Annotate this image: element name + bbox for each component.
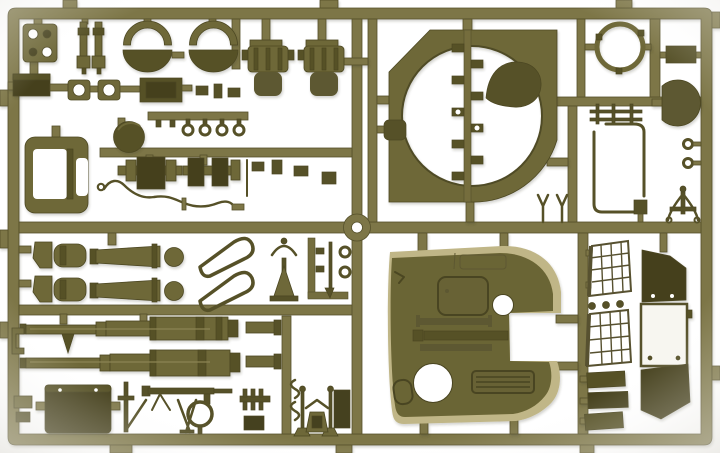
photo-vignette — [0, 0, 720, 453]
sprue-photo-svg: Photograph of an olive drab plastic mode… — [0, 0, 720, 453]
sprue-photo: Photograph of an olive drab plastic mode… — [0, 0, 720, 453]
